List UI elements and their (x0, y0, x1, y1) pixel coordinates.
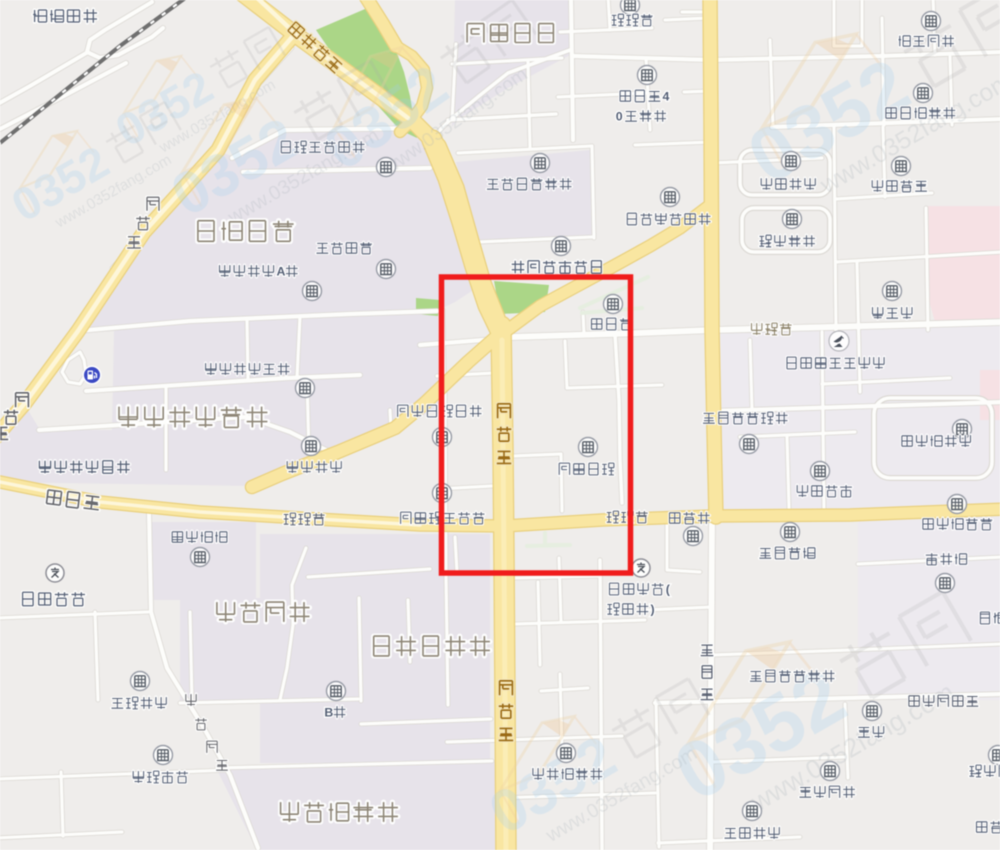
svg-text:4: 4 (662, 90, 669, 104)
svg-text:0: 0 (616, 110, 623, 124)
svg-text:A: A (276, 265, 285, 279)
svg-text:): ) (650, 603, 654, 617)
svg-text:B: B (324, 706, 333, 720)
